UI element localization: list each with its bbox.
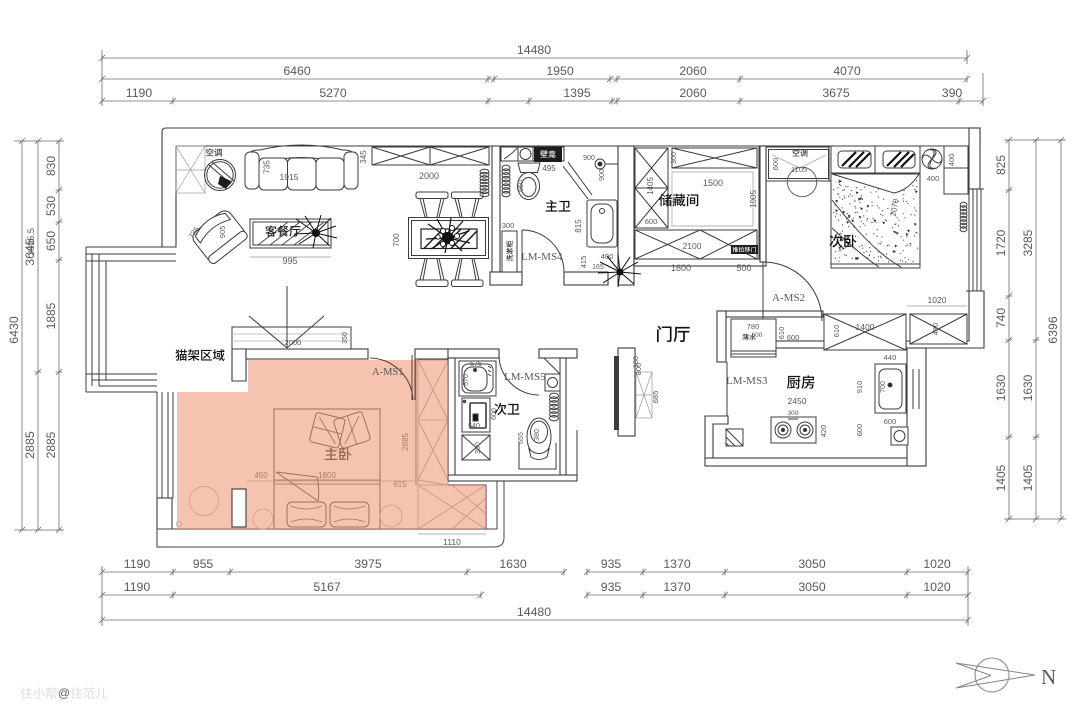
svg-text:400: 400 <box>927 174 940 183</box>
svg-text:1190: 1190 <box>124 580 151 594</box>
svg-text:420: 420 <box>819 425 828 438</box>
svg-text:@: @ <box>58 686 70 700</box>
svg-text:1405: 1405 <box>994 464 1008 491</box>
svg-text:300: 300 <box>671 152 678 164</box>
svg-text:380: 380 <box>534 429 541 441</box>
svg-text:165: 165 <box>592 264 604 271</box>
svg-text:905: 905 <box>218 226 227 239</box>
svg-text:700: 700 <box>880 381 887 393</box>
svg-text:6430: 6430 <box>7 316 21 344</box>
svg-text:300: 300 <box>502 221 515 230</box>
svg-text:2000: 2000 <box>419 171 439 181</box>
svg-text:300: 300 <box>788 410 799 417</box>
svg-text:735: 735 <box>263 160 272 174</box>
svg-text:910: 910 <box>855 381 864 394</box>
svg-text:2885: 2885 <box>44 431 58 458</box>
svg-text:650: 650 <box>44 231 58 251</box>
svg-text:4070: 4070 <box>833 64 861 78</box>
svg-text:1020: 1020 <box>928 295 947 305</box>
svg-text:600: 600 <box>771 158 780 171</box>
svg-text:1020: 1020 <box>923 557 951 571</box>
svg-text:600: 600 <box>645 217 658 226</box>
svg-text:LM-MS5: LM-MS5 <box>504 371 546 383</box>
svg-text:380: 380 <box>475 442 482 454</box>
svg-text:610: 610 <box>777 327 786 340</box>
svg-text:900: 900 <box>583 155 595 162</box>
svg-text:390: 390 <box>942 86 963 100</box>
svg-text:815: 815 <box>574 219 583 233</box>
svg-text:995: 995 <box>282 256 297 266</box>
svg-text:1500: 1500 <box>703 178 723 188</box>
svg-text:A-MS2: A-MS2 <box>772 292 805 304</box>
svg-text:935: 935 <box>601 580 622 594</box>
svg-text:1190: 1190 <box>124 557 151 571</box>
svg-text:600: 600 <box>752 332 763 339</box>
svg-text:1630: 1630 <box>994 374 1008 401</box>
svg-text:700: 700 <box>392 233 401 247</box>
svg-text:2060: 2060 <box>679 86 707 100</box>
svg-text:530: 530 <box>44 196 58 216</box>
svg-text:1370: 1370 <box>663 557 691 571</box>
svg-text:1720: 1720 <box>994 229 1008 256</box>
svg-text:1370: 1370 <box>663 580 691 594</box>
svg-text:1020: 1020 <box>923 580 951 594</box>
svg-text:955: 955 <box>193 557 214 571</box>
svg-text:5270: 5270 <box>319 86 347 100</box>
svg-text:825: 825 <box>994 155 1008 175</box>
svg-text:14480: 14480 <box>517 605 551 619</box>
svg-text:6460: 6460 <box>283 64 311 78</box>
svg-text:2000: 2000 <box>285 338 302 347</box>
svg-text:575: 575 <box>470 361 482 368</box>
svg-text:3050: 3050 <box>798 580 826 594</box>
svg-text:2060: 2060 <box>679 64 707 78</box>
svg-text:1395: 1395 <box>563 86 591 100</box>
svg-text:900: 900 <box>599 169 606 181</box>
svg-text:2885: 2885 <box>23 431 37 459</box>
svg-text:480: 480 <box>931 323 940 336</box>
svg-text:600: 600 <box>855 424 864 437</box>
svg-text:1110: 1110 <box>443 537 461 547</box>
svg-text:500: 500 <box>736 263 751 273</box>
svg-text:1630: 1630 <box>1021 374 1035 401</box>
svg-text:350: 350 <box>342 332 349 344</box>
svg-text:415: 415 <box>579 256 588 269</box>
svg-text:2450: 2450 <box>788 396 807 406</box>
svg-text:570: 570 <box>463 374 470 386</box>
svg-text:610: 610 <box>832 325 841 338</box>
svg-text:655: 655 <box>518 432 525 444</box>
svg-text:6396: 6396 <box>1046 316 1060 344</box>
svg-text:14480: 14480 <box>517 43 551 57</box>
svg-text:3285: 3285 <box>1021 229 1035 256</box>
svg-text:180: 180 <box>633 356 640 368</box>
svg-text:3895.5: 3895.5 <box>26 228 36 256</box>
svg-text:1005: 1005 <box>749 190 758 208</box>
svg-text:345: 345 <box>359 150 368 164</box>
svg-text:3975: 3975 <box>354 557 382 571</box>
svg-text:600: 600 <box>787 333 800 342</box>
svg-text:LM-MS3: LM-MS3 <box>726 375 768 387</box>
svg-text:440: 440 <box>884 353 897 362</box>
svg-text:1405: 1405 <box>1021 464 1035 491</box>
svg-text:495: 495 <box>542 164 556 173</box>
svg-text:935: 935 <box>601 557 622 571</box>
svg-text:1630: 1630 <box>499 557 527 571</box>
svg-text:740: 740 <box>994 308 1008 328</box>
svg-text:N: N <box>1041 665 1056 689</box>
svg-text:1105: 1105 <box>791 165 807 174</box>
svg-text:3675: 3675 <box>822 86 850 100</box>
svg-text:685: 685 <box>651 391 660 404</box>
svg-text:A-MS1: A-MS1 <box>372 367 404 378</box>
svg-text:400: 400 <box>947 154 956 167</box>
svg-text:1190: 1190 <box>126 86 153 100</box>
svg-text:540: 540 <box>468 423 480 430</box>
svg-text:2100: 2100 <box>683 241 702 251</box>
svg-text:3050: 3050 <box>798 557 826 571</box>
svg-text:1405: 1405 <box>646 177 655 195</box>
svg-text:650: 650 <box>518 180 525 192</box>
svg-text:1950: 1950 <box>546 64 574 78</box>
svg-text:1915: 1915 <box>280 172 299 182</box>
svg-text:600: 600 <box>884 417 897 426</box>
svg-text:780: 780 <box>747 322 760 331</box>
svg-text:1885: 1885 <box>44 302 58 329</box>
svg-text:830: 830 <box>44 156 58 176</box>
svg-text:1400: 1400 <box>856 322 875 332</box>
svg-text:5167: 5167 <box>313 580 341 594</box>
svg-text:1600: 1600 <box>671 263 691 273</box>
svg-text:LM-MS4: LM-MS4 <box>521 251 563 263</box>
